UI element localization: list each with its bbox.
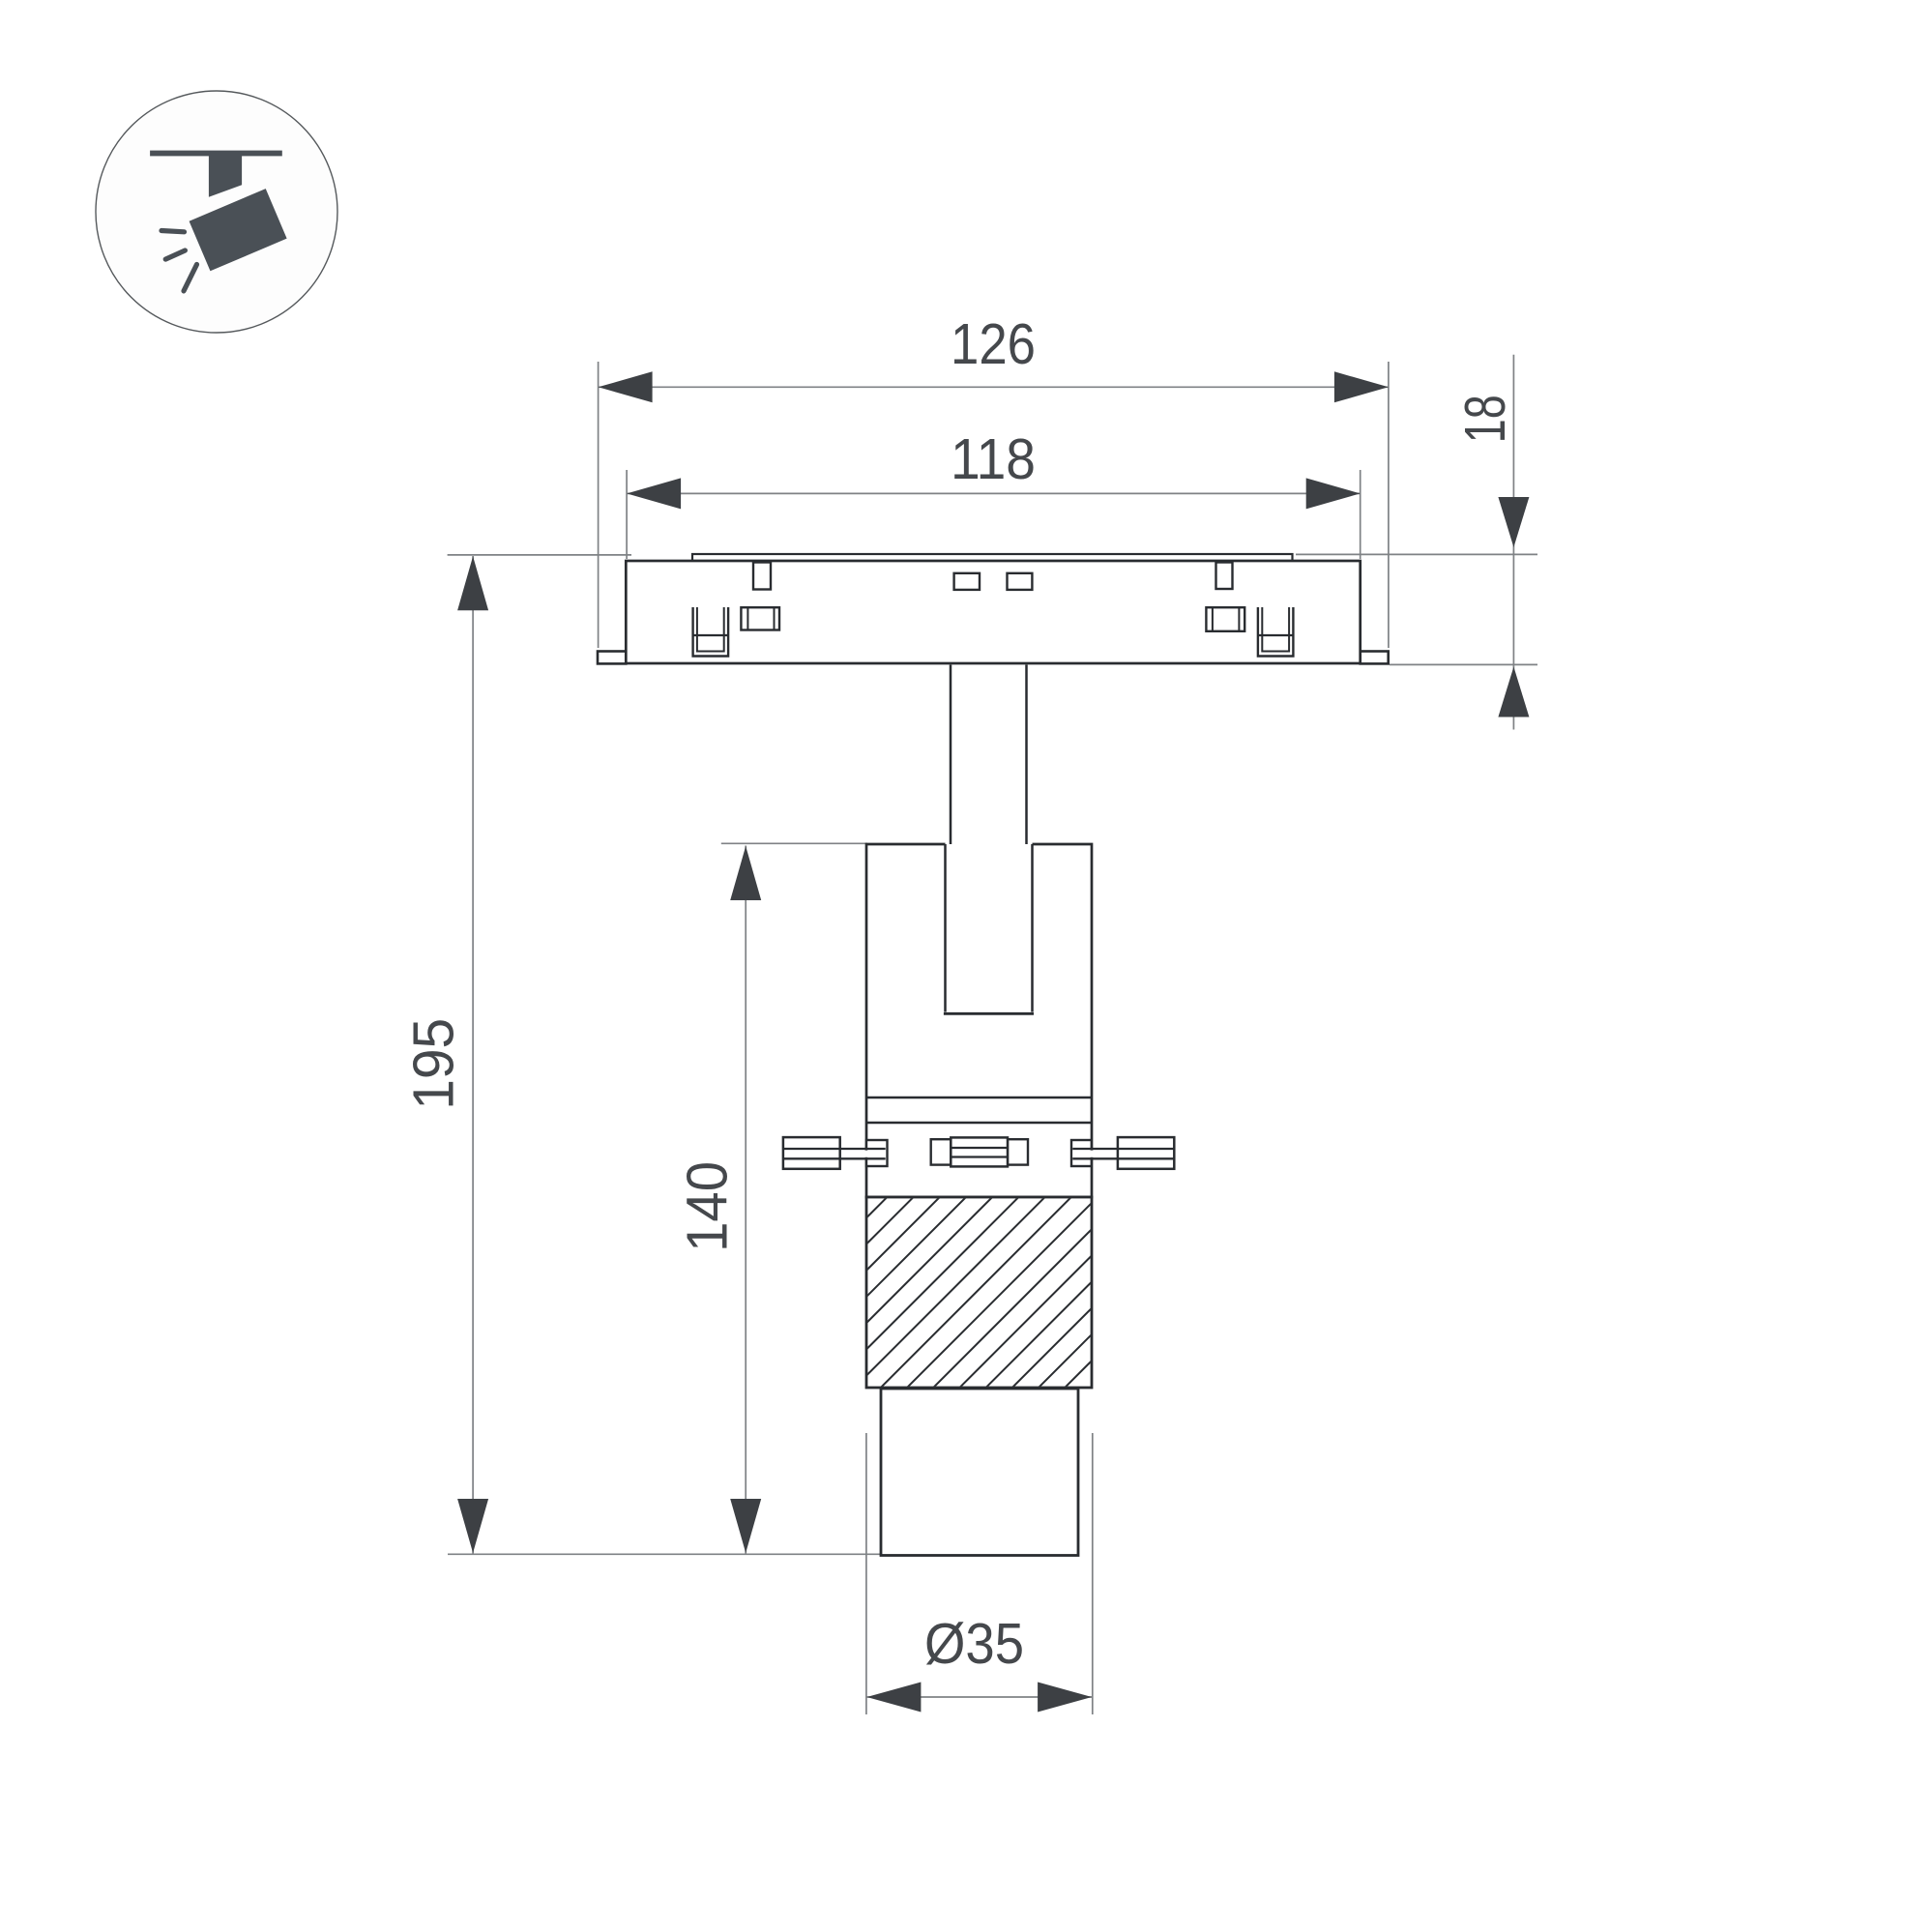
- svg-text:195: 195: [400, 1018, 465, 1110]
- svg-text:140: 140: [675, 1161, 740, 1252]
- svg-text:Ø35: Ø35: [924, 1611, 1024, 1676]
- svg-text:126: 126: [951, 311, 1036, 376]
- svg-text:18: 18: [1452, 395, 1517, 443]
- svg-text:118: 118: [951, 426, 1036, 491]
